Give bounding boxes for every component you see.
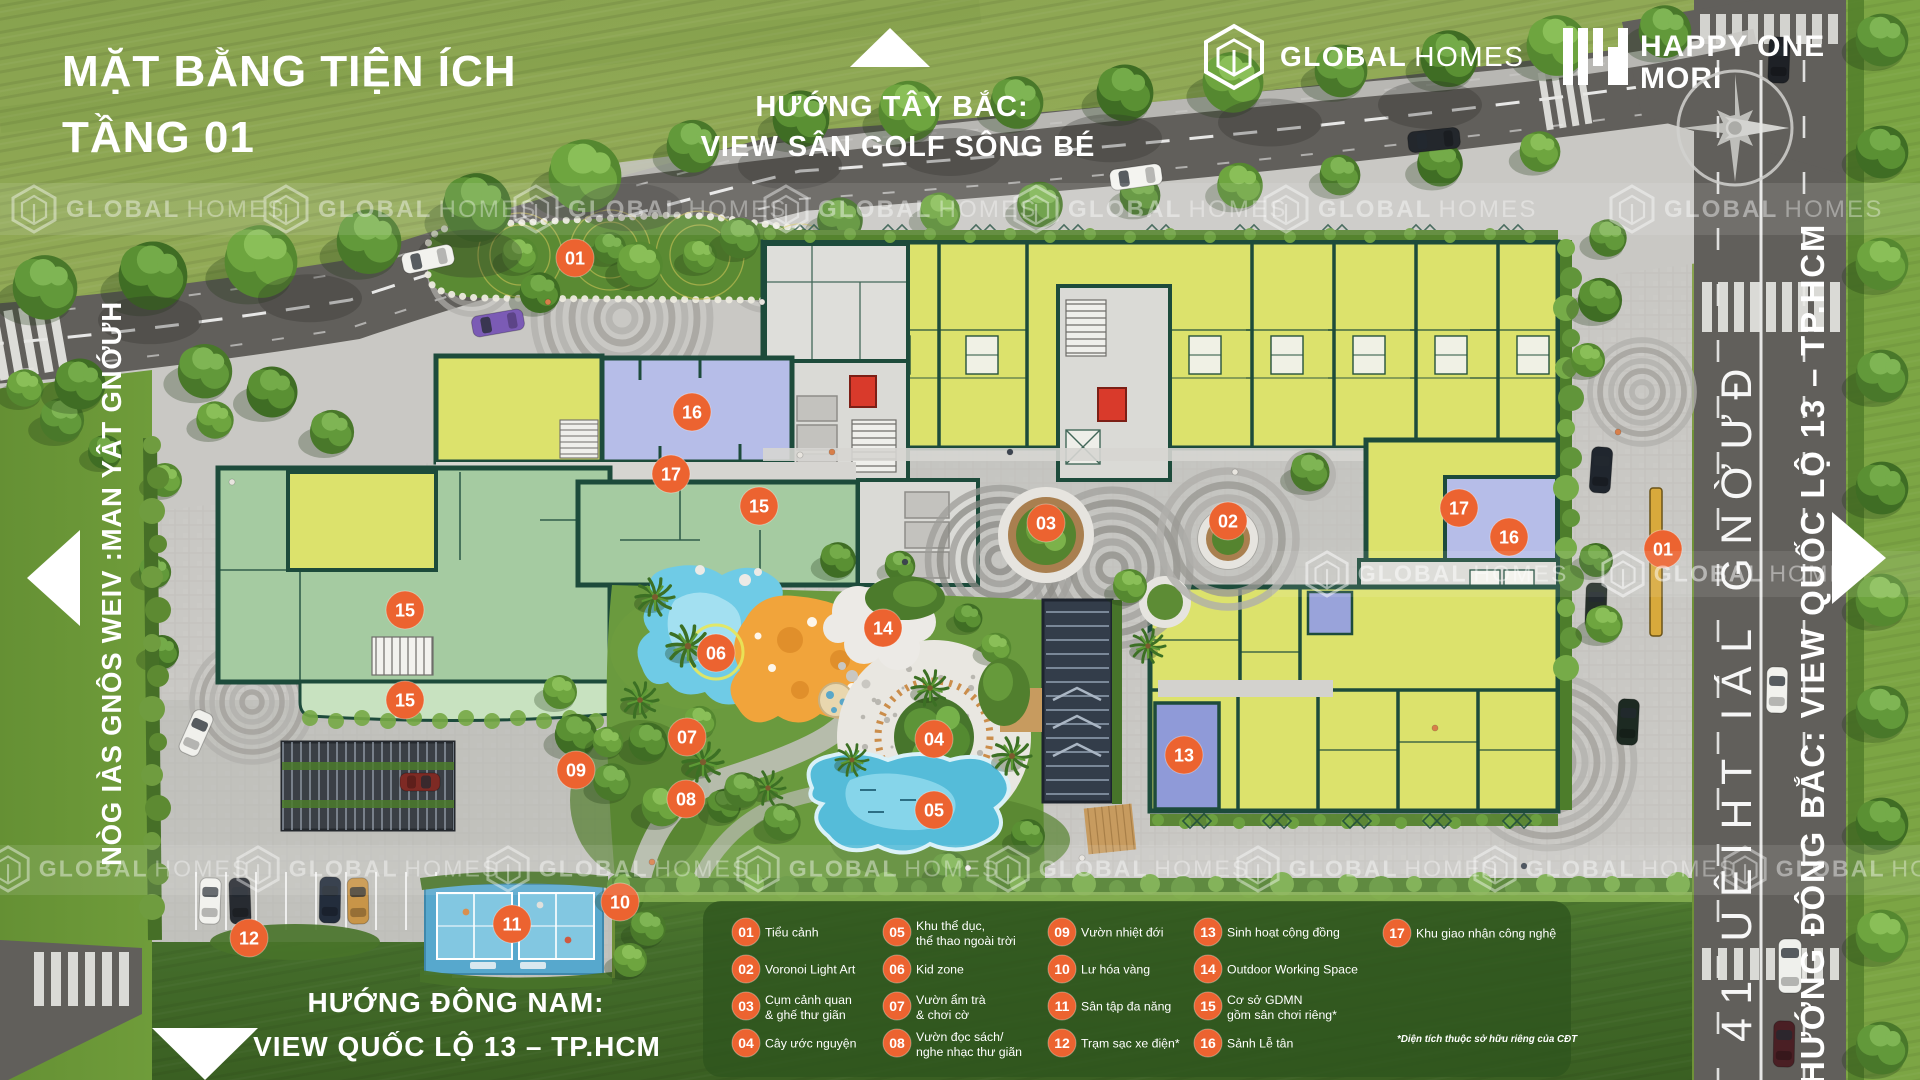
svg-text:Sân tập đa năng: Sân tập đa năng bbox=[1081, 1000, 1171, 1014]
svg-text:02: 02 bbox=[738, 961, 754, 977]
svg-text:VIEW QUỐC LỘ 13 – TP.HCM: VIEW QUỐC LỘ 13 – TP.HCM bbox=[253, 1030, 661, 1062]
svg-text:Tiểu cảnh: Tiểu cảnh bbox=[765, 926, 819, 940]
svg-text:TẦNG 01: TẦNG 01 bbox=[62, 112, 255, 162]
svg-text:MORI: MORI bbox=[1640, 62, 1722, 95]
svg-text:Trạm sạc xe điện*: Trạm sạc xe điện* bbox=[1081, 1037, 1180, 1051]
svg-text:15: 15 bbox=[395, 690, 415, 710]
svg-text:GLOBALHOMES: GLOBALHOMES bbox=[318, 196, 538, 223]
svg-text:16: 16 bbox=[682, 402, 702, 422]
svg-text:10: 10 bbox=[1054, 961, 1070, 977]
svg-text:thể thao ngoài trời: thể thao ngoài trời bbox=[916, 934, 1016, 948]
svg-text:MẶT BẰNG TIỆN ÍCH: MẶT BẰNG TIỆN ÍCH bbox=[62, 46, 517, 96]
svg-text:GLOBALHOMES: GLOBALHOMES bbox=[1358, 561, 1569, 587]
svg-text:10: 10 bbox=[610, 892, 630, 912]
svg-text:Voronoi Light Art: Voronoi Light Art bbox=[765, 963, 856, 977]
svg-text:Sảnh Lễ tân: Sảnh Lễ tân bbox=[1227, 1036, 1293, 1051]
svg-text:05: 05 bbox=[889, 924, 905, 940]
svg-text:HƯỚNG TÂY BẮC:: HƯỚNG TÂY BẮC: bbox=[755, 89, 1028, 123]
svg-text:nghe nhạc thư giãn: nghe nhạc thư giãn bbox=[916, 1045, 1022, 1059]
svg-text:HƯỚNG ĐÔNG BẮC: VIEW QUỐC LỘ 1: HƯỚNG ĐÔNG BẮC: VIEW QUỐC LỘ 13 – TP.HCM bbox=[1793, 223, 1831, 1080]
svg-text:Cụm cảnh quan: Cụm cảnh quan bbox=[765, 993, 852, 1007]
svg-text:HAPPY ONE: HAPPY ONE bbox=[1640, 30, 1825, 63]
svg-text:GLOBALHOMES: GLOBALHOMES bbox=[818, 196, 1038, 223]
svg-text:Vườn đọc sách/: Vườn đọc sách/ bbox=[916, 1030, 1004, 1044]
svg-text:Lư hóa vàng: Lư hóa vàng bbox=[1081, 963, 1150, 977]
svg-text:gồm sân chơi riêng*: gồm sân chơi riêng* bbox=[1227, 1008, 1337, 1022]
svg-text:GLOBALHOMES: GLOBALHOMES bbox=[66, 196, 286, 223]
svg-text:03: 03 bbox=[738, 998, 754, 1014]
svg-text:Vườn ẩm trà: Vườn ẩm trà bbox=[916, 993, 986, 1007]
svg-text:Khu thể dục,: Khu thể dục, bbox=[916, 919, 985, 933]
svg-text:07: 07 bbox=[889, 998, 905, 1014]
svg-text:09: 09 bbox=[566, 760, 586, 780]
svg-text:13: 13 bbox=[1174, 745, 1194, 765]
svg-text:Khu giao nhận công nghệ: Khu giao nhận công nghệ bbox=[1416, 927, 1556, 941]
svg-text:09: 09 bbox=[1054, 924, 1070, 940]
svg-text:GLOBALHOMES: GLOBALHOMES bbox=[539, 856, 750, 882]
svg-text:Cây ước nguyện: Cây ước nguyện bbox=[765, 1037, 857, 1051]
svg-text:GLOBALHOMES: GLOBALHOMES bbox=[1526, 856, 1737, 882]
svg-text:NÒG IÀS GNÔS WEIV :MAN YÂT GNỚ: NÒG IÀS GNÔS WEIV :MAN YÂT GNỚƯH bbox=[95, 301, 127, 866]
svg-text:15: 15 bbox=[1200, 998, 1216, 1014]
svg-text:01: 01 bbox=[565, 248, 585, 268]
svg-text:*Diện tích thuộc sở hữu riêng: *Diện tích thuộc sở hữu riêng của CĐT bbox=[1397, 1034, 1578, 1045]
svg-text:07: 07 bbox=[677, 727, 697, 747]
svg-text:16: 16 bbox=[1499, 527, 1519, 547]
svg-text:& chơi cờ: & chơi cờ bbox=[916, 1008, 969, 1022]
svg-text:GLOBALHOMES: GLOBALHOMES bbox=[789, 856, 1000, 882]
svg-text:41 UÊIHT IÁL GNỜƯĐ: 41 UÊIHT IÁL GNỜƯĐ bbox=[1713, 355, 1761, 1042]
svg-text:GLOBALHOMES: GLOBALHOMES bbox=[1664, 196, 1884, 223]
svg-text:06: 06 bbox=[889, 961, 905, 977]
svg-text:VIEW SÂN GOLF SÔNG BÉ: VIEW SÂN GOLF SÔNG BÉ bbox=[701, 129, 1096, 163]
svg-text:GLOBALHOMES: GLOBALHOMES bbox=[39, 856, 250, 882]
svg-text:02: 02 bbox=[1218, 511, 1238, 531]
svg-text:Outdoor Working Space: Outdoor Working Space bbox=[1227, 963, 1358, 977]
svg-text:Cơ sở GDMN: Cơ sở GDMN bbox=[1227, 993, 1303, 1007]
svg-text:Kid zone: Kid zone bbox=[916, 963, 964, 977]
svg-text:HƯỚNG ĐÔNG NAM:: HƯỚNG ĐÔNG NAM: bbox=[308, 986, 605, 1018]
svg-text:03: 03 bbox=[1036, 513, 1056, 533]
svg-text:15: 15 bbox=[749, 496, 769, 516]
svg-text:13: 13 bbox=[1200, 924, 1216, 940]
svg-text:05: 05 bbox=[924, 800, 944, 820]
svg-text:11: 11 bbox=[502, 914, 521, 934]
svg-text:Vườn nhiệt đới: Vườn nhiệt đới bbox=[1081, 926, 1163, 940]
svg-text:Sinh hoạt cộng đồng: Sinh hoạt cộng đồng bbox=[1227, 926, 1340, 940]
svg-text:GLOBALHOMES: GLOBALHOMES bbox=[1280, 41, 1524, 72]
svg-text:08: 08 bbox=[676, 789, 696, 809]
svg-text:GLOBALHOMES: GLOBALHOMES bbox=[1318, 196, 1538, 223]
svg-text:01: 01 bbox=[738, 924, 754, 940]
svg-text:GLOBALHOMES: GLOBALHOMES bbox=[289, 856, 500, 882]
svg-text:06: 06 bbox=[706, 643, 726, 663]
svg-text:08: 08 bbox=[889, 1035, 905, 1051]
svg-text:04: 04 bbox=[924, 729, 944, 749]
svg-text:16: 16 bbox=[1200, 1035, 1216, 1051]
svg-text:12: 12 bbox=[239, 928, 259, 948]
svg-text:GLOBALHOMES: GLOBALHOMES bbox=[1289, 856, 1500, 882]
svg-text:17: 17 bbox=[661, 464, 681, 484]
svg-text:GLOBALHOMES: GLOBALHOMES bbox=[1039, 856, 1250, 882]
svg-text:GLOBALHOMES: GLOBALHOMES bbox=[1068, 196, 1288, 223]
svg-text:GLOBALHOMES: GLOBALHOMES bbox=[568, 196, 788, 223]
svg-text:17: 17 bbox=[1389, 925, 1405, 941]
svg-text:11: 11 bbox=[1055, 998, 1070, 1014]
svg-text:& ghế thư giãn: & ghế thư giãn bbox=[765, 1008, 846, 1022]
svg-text:14: 14 bbox=[873, 618, 893, 638]
svg-text:12: 12 bbox=[1054, 1035, 1070, 1051]
svg-text:14: 14 bbox=[1200, 961, 1216, 977]
svg-text:15: 15 bbox=[395, 600, 415, 620]
svg-text:04: 04 bbox=[738, 1035, 754, 1051]
svg-text:17: 17 bbox=[1449, 498, 1469, 518]
